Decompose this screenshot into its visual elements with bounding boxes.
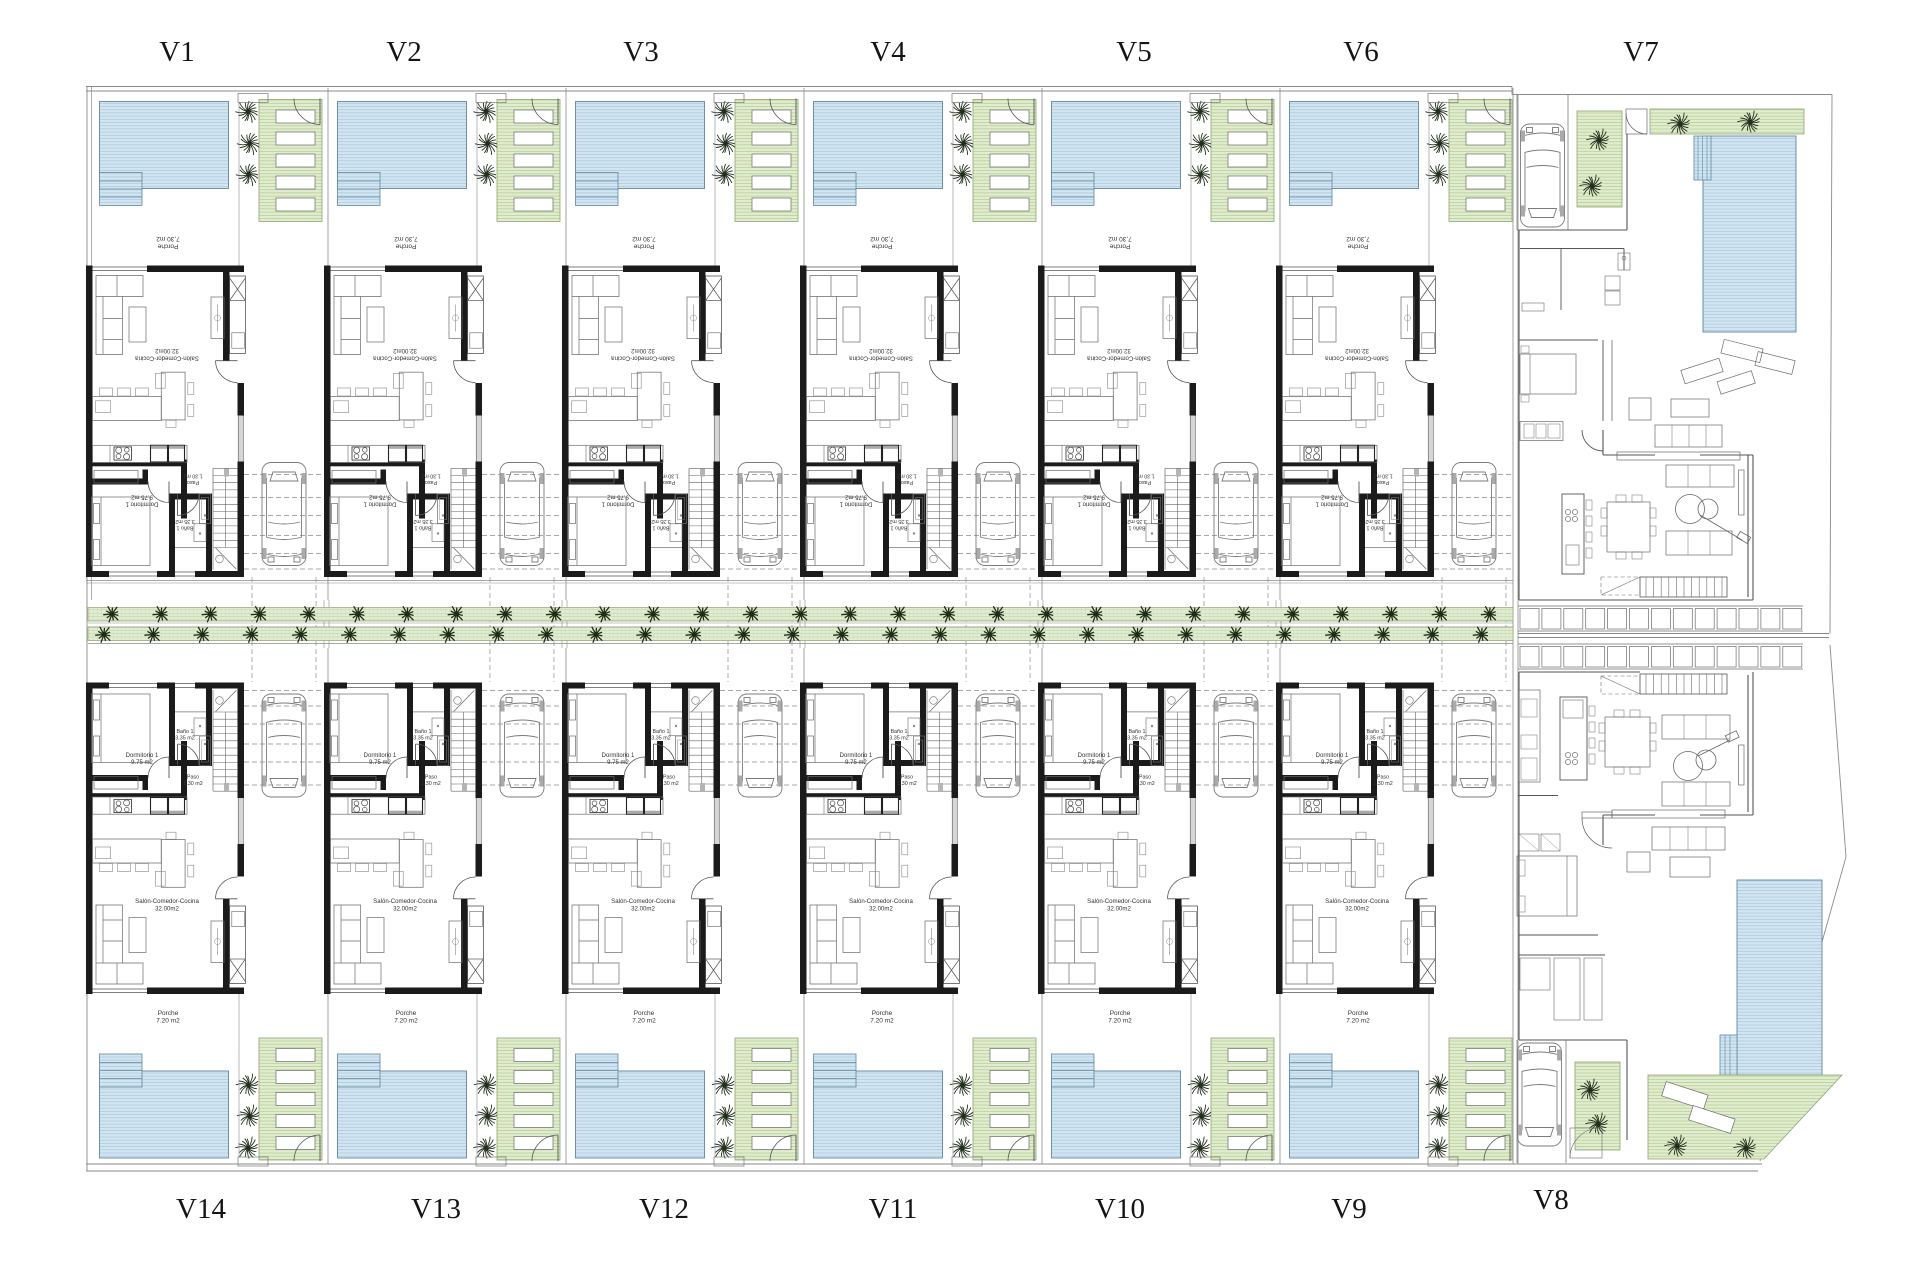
svg-text:V4: V4 bbox=[870, 36, 906, 68]
svg-text:V2: V2 bbox=[386, 36, 421, 68]
svg-text:V3: V3 bbox=[623, 36, 658, 68]
svg-text:V7: V7 bbox=[1623, 36, 1658, 68]
svg-text:V6: V6 bbox=[1343, 36, 1378, 68]
svg-text:V11: V11 bbox=[869, 1193, 918, 1225]
svg-text:V12: V12 bbox=[639, 1193, 689, 1225]
svg-text:V10: V10 bbox=[1095, 1193, 1145, 1225]
svg-text:V14: V14 bbox=[176, 1193, 226, 1225]
svg-text:V13: V13 bbox=[411, 1193, 461, 1225]
svg-text:V1: V1 bbox=[159, 36, 194, 68]
svg-text:V5: V5 bbox=[1116, 36, 1151, 68]
svg-text:V9: V9 bbox=[1331, 1193, 1366, 1225]
svg-text:V8: V8 bbox=[1533, 1184, 1568, 1216]
